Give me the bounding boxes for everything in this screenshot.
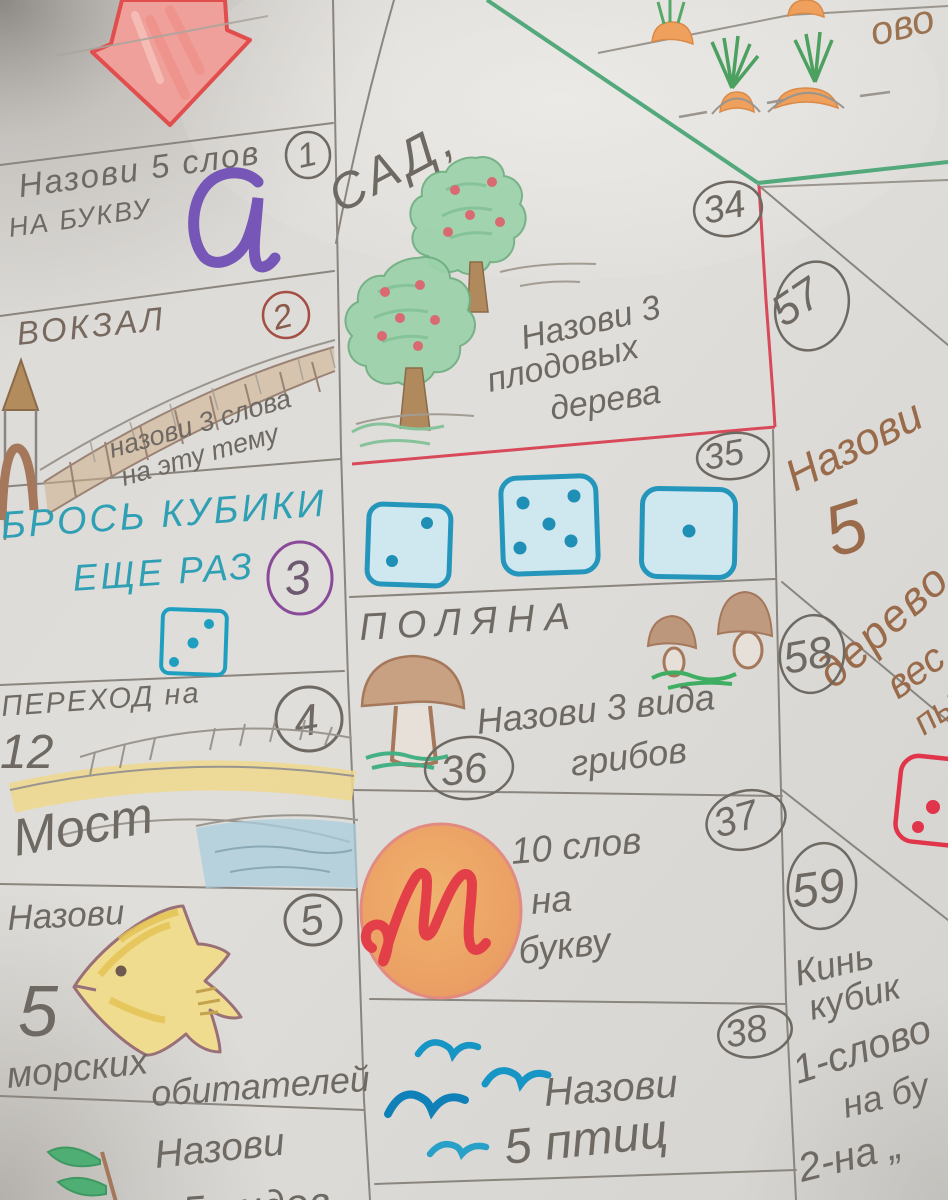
svg-text:Назови: Назови <box>6 893 125 938</box>
svg-text:35: 35 <box>700 430 748 478</box>
svg-text:58: 58 <box>779 627 836 684</box>
svg-text:38: 38 <box>721 1007 771 1057</box>
svg-text:12: 12 <box>0 726 53 779</box>
svg-text:59: 59 <box>788 859 848 919</box>
svg-text:на: на <box>529 878 573 922</box>
svg-text:36: 36 <box>438 743 490 795</box>
svg-text:34: 34 <box>699 183 749 233</box>
svg-text:5: 5 <box>18 972 59 1052</box>
